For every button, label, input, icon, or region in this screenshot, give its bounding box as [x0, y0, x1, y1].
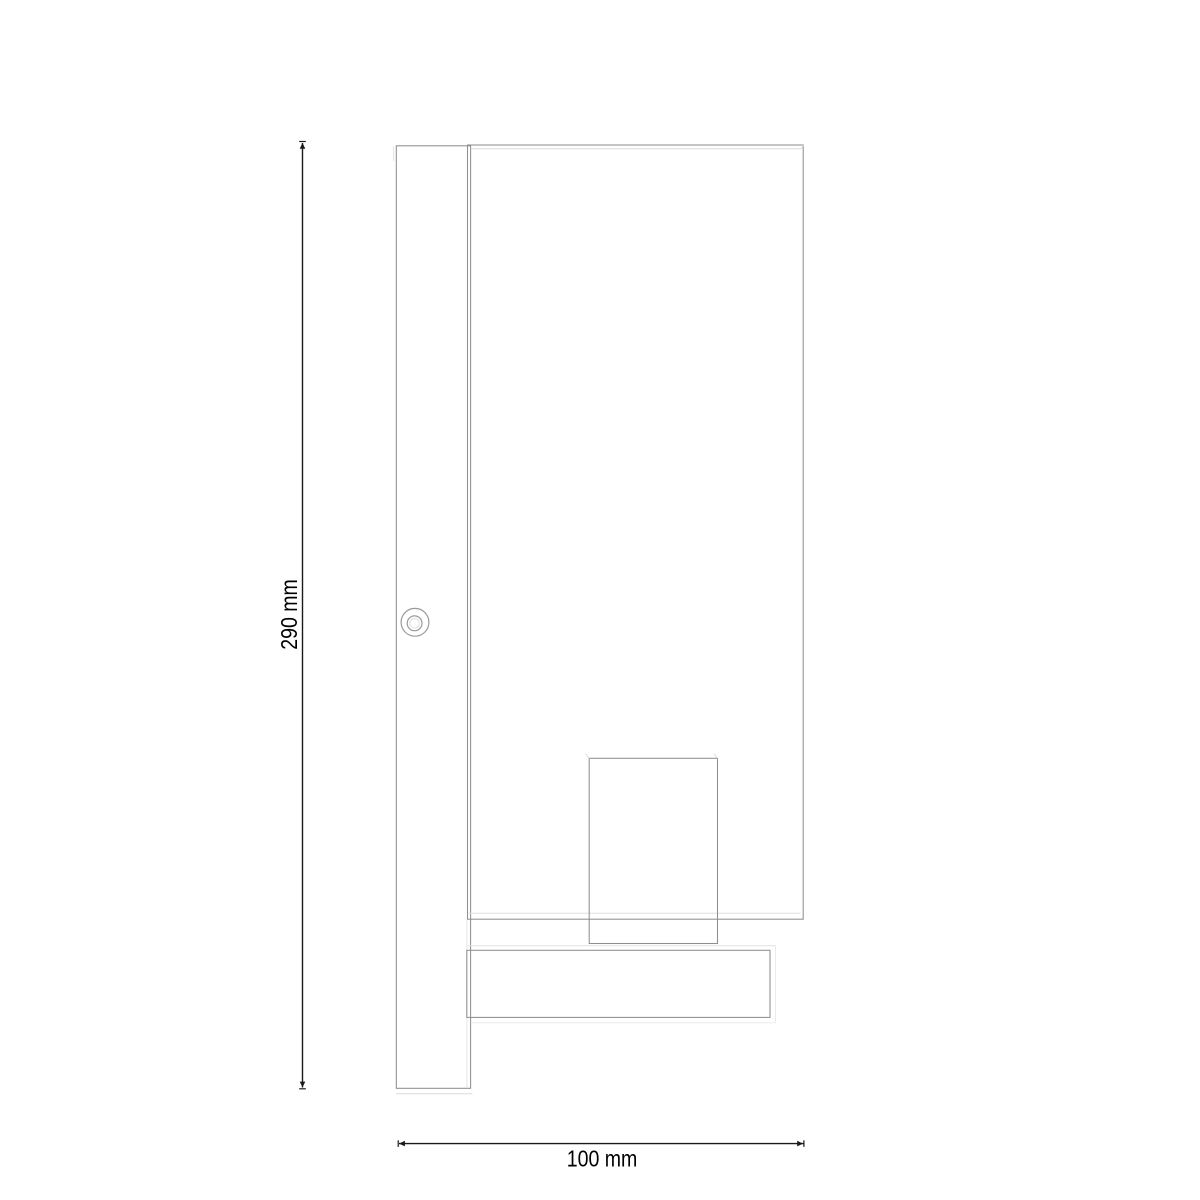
svg-text:290 mm: 290 mm — [277, 579, 303, 650]
svg-text:100 mm: 100 mm — [567, 1146, 638, 1172]
